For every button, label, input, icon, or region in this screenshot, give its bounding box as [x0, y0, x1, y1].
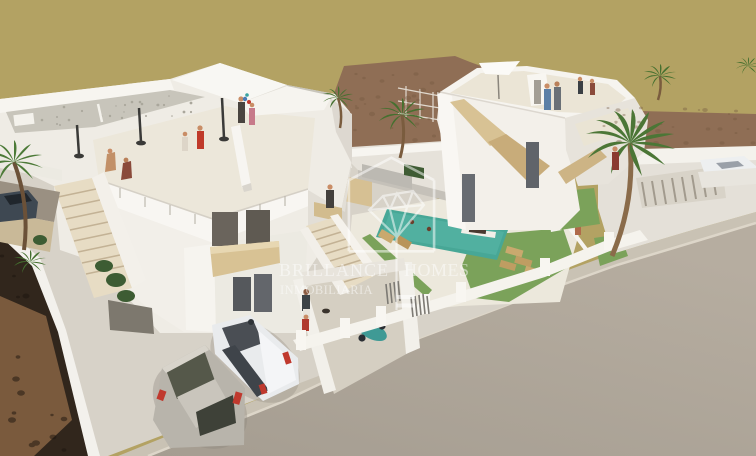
svg-text:BRILLANCE: BRILLANCE	[279, 260, 389, 280]
svg-text:INMOBILIARIA: INMOBILIARIA	[280, 283, 373, 297]
svg-text:HOMES: HOMES	[404, 260, 470, 280]
